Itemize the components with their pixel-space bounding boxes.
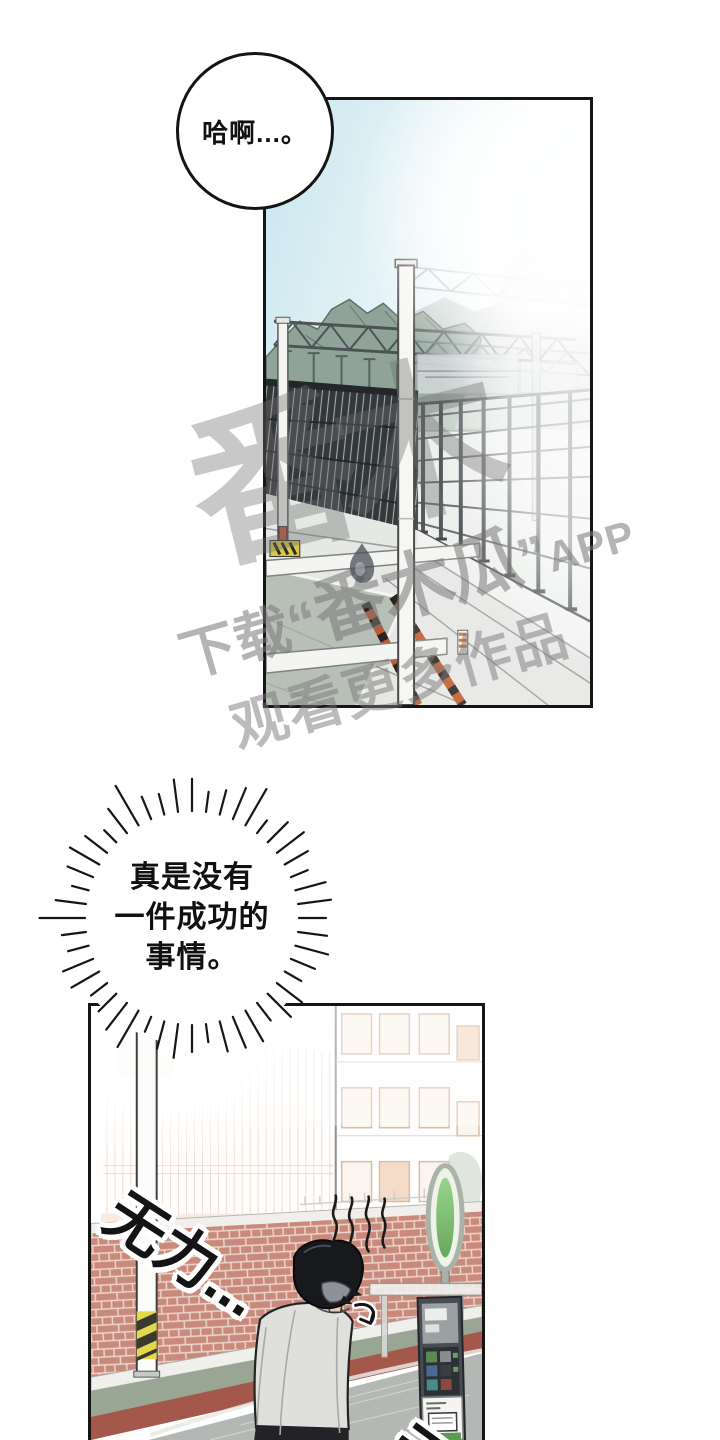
thought-line-2: 一件成功的: [52, 898, 332, 938]
thought-line-3: 事情。: [52, 938, 332, 978]
panel-railway-scene: [263, 97, 593, 708]
comic-page: 番木 下载“番木瓜”APP 观看更多作品 哈啊...。: [0, 0, 720, 1440]
speech-bubble-text: 哈啊...。: [202, 113, 308, 150]
railway-illustration: [266, 100, 590, 705]
thought-bubble-text: 真是没有 一件成功的 事情。: [52, 858, 332, 978]
thought-line-1: 真是没有: [52, 858, 332, 898]
speech-bubble: 哈啊...。: [176, 52, 334, 210]
